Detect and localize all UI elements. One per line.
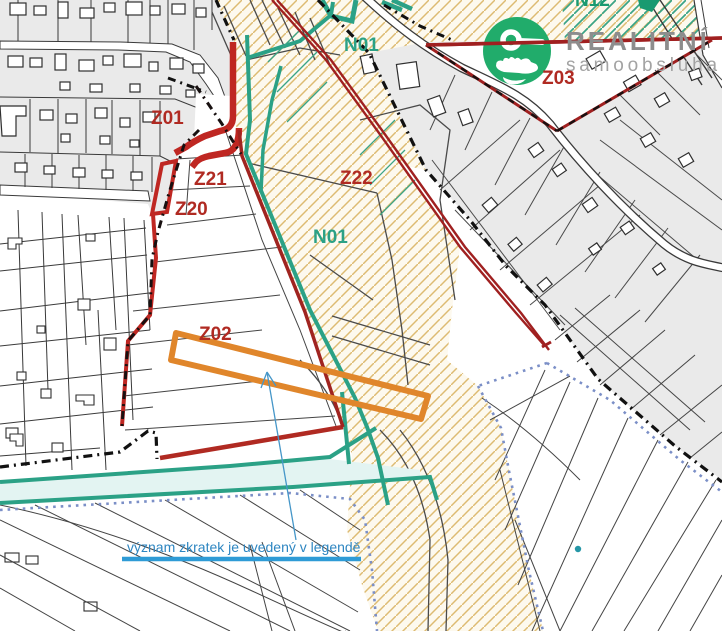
svg-text:N12: N12 [575,0,610,11]
svg-text:význam zkratek je uvedený v le: význam zkratek je uvedený v legendě [127,539,361,555]
svg-text:REALITNÍ: REALITNÍ [566,26,710,56]
svg-text:Z03: Z03 [542,68,575,89]
svg-text:Z01: Z01 [151,108,184,129]
svg-text:N01: N01 [344,35,379,56]
svg-text:Z20: Z20 [175,199,208,220]
svg-text:Z02: Z02 [199,324,232,345]
svg-text:Z21: Z21 [194,169,227,190]
svg-text:Z22: Z22 [340,168,373,189]
svg-text:N01: N01 [313,227,348,248]
svg-text:samoobsluha: samoobsluha [566,55,721,76]
